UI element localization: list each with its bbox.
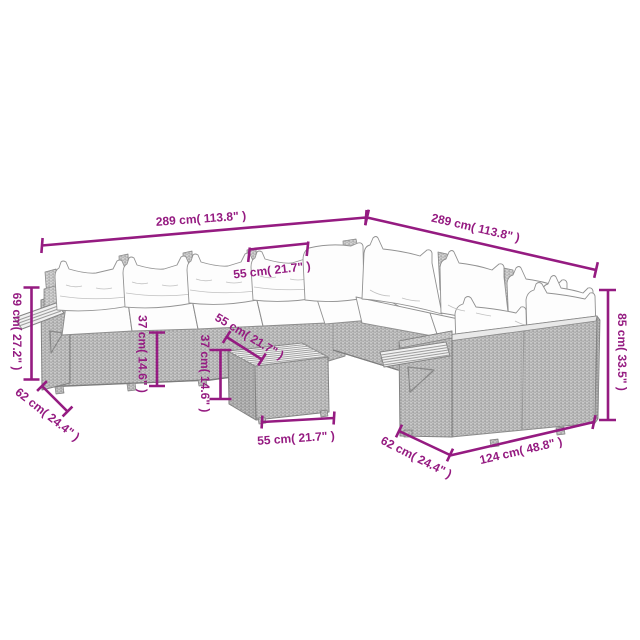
svg-text:37 cm( 14.6" ): 37 cm( 14.6" ) [198, 335, 212, 413]
svg-text:85 cm( 33.5" ): 85 cm( 33.5" ) [615, 313, 629, 391]
svg-text:37 cm( 14.6" ): 37 cm( 14.6" ) [135, 315, 149, 393]
svg-text:69 cm( 27.2" ): 69 cm( 27.2" ) [10, 293, 24, 371]
